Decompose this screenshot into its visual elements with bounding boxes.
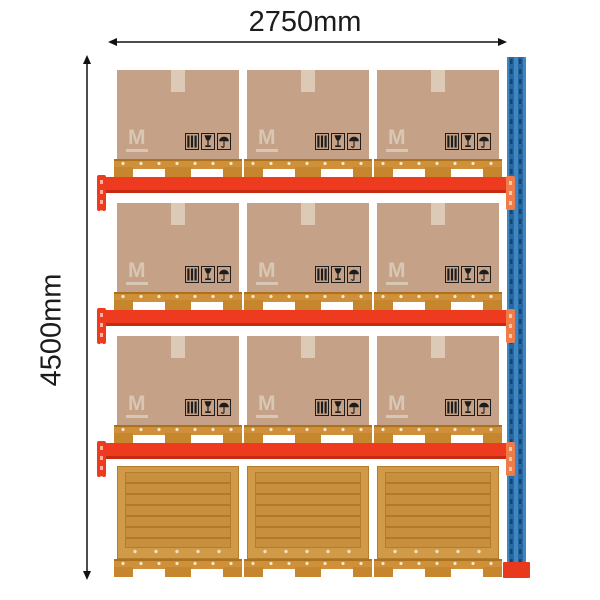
pallet (374, 559, 502, 577)
fragile-glass-icon (461, 266, 475, 283)
rack-diagram-canvas: 2750mm 4500mm M (0, 0, 600, 600)
rack-beam-level-1 (97, 443, 509, 459)
box-brand-logo: M (256, 128, 278, 152)
pallet-unit: M (244, 336, 372, 443)
shipping-symbols (445, 399, 491, 416)
stacking-bars-icon (315, 399, 329, 416)
crate-unit (374, 466, 502, 577)
stacking-bars-icon (315, 266, 329, 283)
height-dimension-label: 4500mm (36, 274, 69, 387)
shipping-symbols (315, 266, 361, 283)
umbrella-icon (217, 399, 231, 416)
upright-foot-plate (503, 562, 530, 578)
pallet-blocks (374, 300, 502, 310)
fragile-glass-icon (201, 399, 215, 416)
wooden-crate (117, 466, 239, 559)
pallet-blocks (114, 167, 242, 177)
pallet (114, 292, 242, 310)
stacking-bars-icon (445, 266, 459, 283)
crate-unit (244, 466, 372, 577)
arrowhead-down-icon (83, 571, 91, 580)
box-brand-logo: M (256, 394, 278, 418)
pallet-blocks (374, 567, 502, 577)
box-tape (431, 336, 445, 358)
pallet (374, 159, 502, 177)
umbrella-icon (347, 133, 361, 150)
pallet (244, 559, 372, 577)
crate-nails (385, 549, 491, 554)
fragile-glass-icon (461, 133, 475, 150)
pallet-blocks (244, 433, 372, 443)
cardboard-box: M (247, 70, 369, 159)
pallet-blocks (374, 433, 502, 443)
rack-beam-level-3 (97, 177, 509, 193)
pallet-blocks (114, 433, 242, 443)
pallet-unit: M (374, 70, 502, 177)
pallet (374, 292, 502, 310)
shipping-symbols (315, 399, 361, 416)
stacking-bars-icon (185, 266, 199, 283)
crate-unit (114, 466, 242, 577)
cardboard-box: M (117, 336, 239, 425)
pallet-unit: M (244, 203, 372, 310)
pallet (114, 425, 242, 443)
cardboard-box: M (247, 336, 369, 425)
crate-nails (125, 549, 231, 554)
umbrella-icon (347, 399, 361, 416)
box-brand-logo: M (386, 394, 408, 418)
box-brand-logo: M (126, 394, 148, 418)
pallet-blocks (114, 567, 242, 577)
box-tape (301, 70, 315, 92)
wooden-crate (377, 466, 499, 559)
box-tape (301, 203, 315, 225)
rack-beam-level-2 (97, 310, 509, 326)
pallet (374, 425, 502, 443)
stacking-bars-icon (185, 133, 199, 150)
cardboard-box: M (377, 336, 499, 425)
shipping-symbols (445, 133, 491, 150)
cardboard-box: M (117, 203, 239, 292)
shipping-symbols (185, 133, 231, 150)
fragile-glass-icon (331, 133, 345, 150)
box-brand-logo: M (386, 261, 408, 285)
shipping-symbols (445, 266, 491, 283)
cardboard-box: M (377, 203, 499, 292)
pallet-blocks (244, 567, 372, 577)
pallet-unit: M (374, 203, 502, 310)
umbrella-icon (477, 399, 491, 416)
fragile-glass-icon (461, 399, 475, 416)
crate-slat-panel (385, 472, 491, 548)
box-brand-logo: M (126, 128, 148, 152)
cardboard-box: M (377, 70, 499, 159)
pallet (114, 159, 242, 177)
box-tape (431, 70, 445, 92)
pallet (244, 159, 372, 177)
cardboard-box: M (247, 203, 369, 292)
umbrella-icon (217, 133, 231, 150)
box-brand-logo: M (126, 261, 148, 285)
beam-left-connector (97, 441, 106, 477)
shipping-symbols (185, 399, 231, 416)
box-tape (171, 336, 185, 358)
arrowhead-up-icon (83, 55, 91, 64)
umbrella-icon (477, 266, 491, 283)
box-tape (301, 336, 315, 358)
arrowhead-left-icon (108, 38, 117, 46)
pallet-unit: M (114, 70, 242, 177)
shipping-symbols (315, 133, 361, 150)
pallet (244, 425, 372, 443)
crate-slat-panel (125, 472, 231, 548)
upright-perforated-rail (518, 57, 523, 562)
fragile-glass-icon (201, 133, 215, 150)
pallet-blocks (244, 300, 372, 310)
wooden-crate (247, 466, 369, 559)
width-dimension-line (110, 41, 505, 43)
crate-slat-panel (255, 472, 361, 548)
beam-left-connector (97, 175, 106, 211)
cardboard-box: M (117, 70, 239, 159)
pallet-unit: M (114, 336, 242, 443)
pallet-blocks (374, 167, 502, 177)
beam-right-connector (506, 309, 515, 343)
umbrella-icon (477, 133, 491, 150)
pallet-unit: M (374, 336, 502, 443)
width-dimension-label: 2750mm (249, 6, 362, 39)
pallet-blocks (114, 300, 242, 310)
fragile-glass-icon (331, 399, 345, 416)
stacking-bars-icon (445, 133, 459, 150)
height-dimension-line (86, 57, 88, 578)
stacking-bars-icon (185, 399, 199, 416)
pallet-blocks (244, 167, 372, 177)
crate-nails (255, 549, 361, 554)
beam-right-connector (506, 442, 515, 476)
shipping-symbols (185, 266, 231, 283)
box-tape (431, 203, 445, 225)
pallet (244, 292, 372, 310)
pallet-unit: M (244, 70, 372, 177)
stacking-bars-icon (445, 399, 459, 416)
fragile-glass-icon (201, 266, 215, 283)
pallet (114, 559, 242, 577)
beam-right-connector (506, 176, 515, 210)
arrowhead-right-icon (498, 38, 507, 46)
pallet-unit: M (114, 203, 242, 310)
box-tape (171, 70, 185, 92)
box-brand-logo: M (386, 128, 408, 152)
stacking-bars-icon (315, 133, 329, 150)
beam-left-connector (97, 308, 106, 344)
box-tape (171, 203, 185, 225)
umbrella-icon (217, 266, 231, 283)
box-brand-logo: M (256, 261, 278, 285)
umbrella-icon (347, 266, 361, 283)
fragile-glass-icon (331, 266, 345, 283)
